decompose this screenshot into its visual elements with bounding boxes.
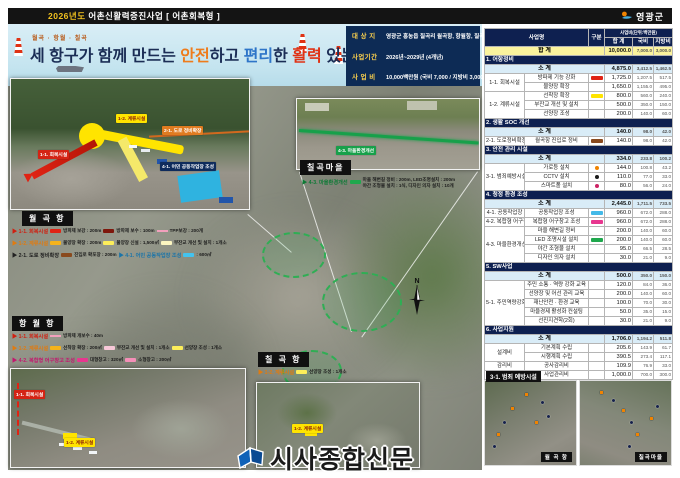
harbor-highlight-ellipse	[262, 232, 326, 278]
legend-text: 방파제 개보수 : 40m	[63, 333, 103, 339]
harbor-highlight-ellipse	[322, 272, 402, 332]
legend-swatch	[172, 346, 183, 350]
section-row: 5. SW사업	[485, 263, 673, 272]
table-row: 5-1. 주민역량강화주민 소통 · 역량 강화 교육120.084.036.0	[485, 281, 673, 290]
map-facility-tag: 2-1. 도로 정비확장	[162, 126, 203, 135]
legend-text: 방파제 보수 : 100m	[116, 228, 154, 234]
legend-row: ▶ 1-1. 회복시설방파제 개보수 : 40m	[12, 330, 262, 342]
compass-north-label: N	[408, 278, 426, 285]
village-roofs	[407, 101, 437, 110]
slogan-main: 세 항구가 함께 만드는 안전하고 편리한 활력 있는 어촌	[30, 42, 389, 66]
text-part: 세 항구가 함께 만드는	[30, 48, 180, 65]
map-facility-tag: 1-1. 회복시설	[38, 150, 69, 159]
workshop-area	[177, 170, 222, 203]
crime-photo-chilgok: 칠곡마을	[579, 380, 672, 466]
chilgok-hang-caption: 칠 곡 항	[258, 352, 309, 367]
legend-row: ▶ 4-3. 마을환경개선마을 해변길 정비 : 200m, LED조명설치 :…	[302, 176, 480, 188]
press-watermark: 시사종합신문	[236, 440, 414, 476]
hangwol-legend: ▶ 1-1. 회복시설방파제 개보수 : 40m▶ 1-2. 계류시설선착장 확…	[12, 330, 262, 366]
legend-title: ▶ 4-3. 마을환경개선	[302, 179, 348, 186]
info-label: 사 업 비	[352, 72, 382, 81]
top-title-bar: 2026년도 어촌신활력증진사업 [ 어촌회복형 ] 영광군	[8, 8, 672, 24]
info-label: 대 상 지	[352, 31, 382, 40]
map-facility-tag: 1-2. 계류시설	[292, 424, 323, 433]
legend-row: ▶ 2-1. 도로 정비확장진입로 확포장 : 200m▶ 4-1. 어민 공동…	[12, 249, 262, 261]
section-row: 3. 안전 관리 시설	[485, 146, 673, 155]
legend-swatch	[183, 253, 194, 257]
boat	[89, 451, 97, 454]
legend-lines: 마을 해변길 정비 : 200m, LED조명설치 : 200m야간 조형물 설…	[363, 177, 455, 188]
hangwol-photo	[10, 368, 246, 468]
legend-swatch	[50, 241, 61, 245]
legend-dash-swatch	[50, 335, 61, 337]
subtotal-row: 소 계334.0233.8100.2	[485, 155, 673, 164]
boat	[141, 149, 150, 152]
wolgok-legend: ▶ 1-1. 회복시설방파제 보강 : 200m방파제 보수 : 100mTPP…	[12, 225, 262, 261]
text-part: 활력	[292, 48, 321, 65]
text-part: 편리	[244, 48, 273, 65]
legend-swatch	[61, 253, 72, 257]
legend-row: ▶ 4-2. 복합형 어구창고 조성대형창고 : 320㎡소형창고 : 200㎡	[12, 354, 262, 366]
info-row: 대 상 지영광군 홍농읍 칠곡리 월곡항, 항월항, 칠곡항 일원	[352, 31, 474, 40]
info-value: 2026년~2029년 (4개년)	[386, 53, 443, 61]
boat	[129, 145, 137, 148]
wolgok-caption: 월 곡 항	[22, 211, 73, 226]
legend-text: 소형창고 : 200㎡	[138, 357, 171, 363]
legend-row: ▶ 1-2. 계류시설선양장 조성 : 1개소	[258, 366, 418, 378]
crime-photo-wolgok: 월 곡 항	[484, 380, 577, 466]
chilgok-hang-legend: ▶ 1-2. 계류시설선양장 조성 : 1개소	[258, 366, 418, 378]
table-row: 1-1. 회복시설방파제 기능 강화1,725.01,207.5517.5	[485, 74, 673, 83]
table-row: 3-1. 범죄예방시설가로등 설치144.0100.843.2	[485, 164, 673, 173]
text-part: 안전	[180, 48, 209, 65]
legend-title: ▶ 1-1. 회복시설	[12, 228, 48, 235]
county-logo: 영광군	[621, 10, 672, 23]
legend-text: 대형창고 : 320㎡	[90, 357, 123, 363]
legend-text: 선착장 확장 : 200㎡	[63, 345, 102, 351]
chilgok-maeul-caption: 칠곡마을	[300, 160, 351, 175]
poster-page: 2026년도 어촌신활력증진사업 [ 어촌회복형 ] 영광군 월곡 · 항월 ·…	[0, 0, 680, 478]
section-row: 2. 생활 SOC 개선	[485, 119, 673, 128]
budget-table: 사업명구분 사업비(단위:백만원) 합 계국비지방비합 계10,000.07,0…	[484, 28, 673, 380]
map-facility-tag: 1-2. 계류시설	[116, 114, 147, 123]
legend-text: : 600㎡	[196, 252, 211, 258]
subtotal-row: 소 계2,445.01,711.5733.5	[485, 200, 673, 209]
table-row: 4-2. 복합형 어구창고복합형 어구창고 조성960.0672.0288.0	[485, 218, 673, 227]
section-row: 1. 어항정비	[485, 56, 673, 65]
boat	[73, 447, 82, 450]
table-row: 감리비공사감리비109.976.933.0	[485, 362, 673, 371]
table-row: 2-1. 도로정비확장월곡항 진입로 정비140.098.042.0	[485, 137, 673, 146]
legend-title: ▶ 1-2. 계류시설	[12, 345, 48, 352]
map-facility-tag: 4-1. 어민 공동작업장 조성	[160, 162, 216, 171]
legend-text: 물양장 확장 : 200m	[63, 240, 101, 246]
county-logo-icon	[621, 11, 633, 21]
text-part: 하고	[210, 48, 244, 65]
table-row: 설계비기본계획 수립205.6143.961.7	[485, 344, 673, 353]
green-coast-line	[299, 129, 479, 145]
map-facility-tag: 1-1. 회복시설	[14, 390, 45, 399]
subtotal-row: 소 계4,875.03,412.51,462.5	[485, 65, 673, 74]
legend-swatch	[161, 241, 172, 245]
compass-icon: N	[408, 278, 426, 320]
crime-prevention-photos: 월 곡 항 칠곡마을	[484, 380, 672, 466]
legend-swatch	[103, 229, 114, 233]
legend-dash-swatch	[157, 230, 168, 232]
press-name: 시사종합신문	[270, 440, 414, 476]
map-facility-tag: 1-2. 계류시설	[64, 438, 95, 447]
crime-prevention-label: 3-1. 범죄 예방시설	[486, 371, 541, 382]
legend-swatch	[125, 358, 136, 362]
legend-swatch	[103, 241, 114, 245]
slogan-ports: 월곡 · 항월 · 칠곡	[32, 33, 88, 42]
text-part: 한	[273, 48, 292, 65]
subtotal-row: 소 계140.098.042.0	[485, 128, 673, 137]
legend-text: 방파제 보강 : 200m	[63, 228, 101, 234]
press-logo-icon	[236, 446, 266, 470]
legend-title: ▶ 1-2. 계류시설	[258, 369, 294, 376]
legend-text: 선양장 조성 : 1개소	[309, 369, 347, 375]
chilgok-maeul-legend: ▶ 4-3. 마을환경개선마을 해변길 정비 : 200m, LED조명설치 :…	[302, 176, 480, 188]
text-part: 2026년도	[48, 11, 88, 21]
legend-text: 선양장 조성 : 1개소	[185, 345, 223, 351]
legend-title: ▶ 4-2. 복합형 어구창고 조성	[12, 357, 75, 364]
info-value: 10,000백만원 (국비 7,000 / 지방비 3,000)	[386, 73, 485, 81]
legend-text: 부잔교 개선 및 설치 : 1개소	[174, 240, 227, 246]
text-part: [ 어촌회복형 ]	[166, 11, 220, 21]
legend-row: ▶ 1-1. 회복시설방파제 보강 : 200m방파제 보수 : 100mTPP…	[12, 225, 262, 237]
legend-text: 부잔교 개선 및 설치 : 1개소	[117, 345, 170, 351]
info-row: 사업기간2026년~2029년 (4개년)	[352, 52, 474, 61]
crime-photo-caption: 칠곡마을	[635, 452, 667, 462]
legend-text: 진입로 확포장 : 200m	[74, 252, 116, 258]
legend-text: 물양장 신설 : 1,500㎡	[116, 240, 159, 246]
map-facility-tag: 4-3. 마을환경개선	[336, 146, 376, 155]
table-row: 1-2. 계류시설선착장 확장800.0560.0240.0	[485, 92, 673, 101]
subtotal-row: 소 계500.0350.0150.0	[485, 272, 673, 281]
blue-roof	[219, 197, 233, 203]
mudflat-shape	[131, 399, 231, 459]
legend-swatch	[77, 358, 88, 362]
section-row: 6. 사업지원	[485, 326, 673, 335]
project-info-panel: 대 상 지영광군 홍농읍 칠곡리 월곡항, 항월항, 칠곡항 일원사업기간202…	[346, 26, 480, 86]
text-part: 어촌신활력증진사업	[88, 11, 166, 21]
legend-swatch	[296, 370, 307, 374]
legend-text: TPP보강 : 200개	[170, 228, 203, 234]
table-header: 사업명구분 사업비(단위:백만원)	[485, 29, 673, 38]
poster-title: 2026년도 어촌신활력증진사업 [ 어촌회복형 ]	[8, 10, 220, 22]
legend-swatch	[350, 180, 361, 184]
section-row: 4. 청정 환경 조성	[485, 191, 673, 200]
hangwol-caption: 항 월 항	[12, 316, 63, 331]
info-row: 사 업 비10,000백만원 (국비 7,000 / 지방비 3,000)	[352, 72, 474, 81]
village-roofs	[305, 103, 329, 111]
legend-title: ▶ 1-1. 회복시설	[12, 333, 48, 340]
legend-title: ▶ 1-2. 계류시설	[12, 240, 48, 247]
total-row: 합 계10,000.07,000.03,000.0	[485, 47, 673, 56]
table-row: 4-3. 마을환경개선마을 해변길 정비200.0140.060.0	[485, 227, 673, 236]
legend-swatch	[50, 229, 61, 233]
table-row: 4-1. 공동작업장공동작업장 조성960.0672.0288.0	[485, 209, 673, 218]
crime-photo-caption: 월 곡 항	[541, 452, 572, 462]
legend-title: ▶ 4-1. 어민 공동작업장 조성	[119, 252, 182, 259]
county-name: 영광군	[636, 10, 664, 23]
legend-row: ▶ 1-2. 계류시설선착장 확장 : 200㎡부잔교 개선 및 설치 : 1개…	[12, 342, 262, 354]
legend-swatch	[50, 346, 61, 350]
ship-icon	[56, 66, 84, 72]
info-label: 사업기간	[352, 52, 382, 61]
wolgok-photo	[10, 78, 250, 210]
subtotal-row: 소 계1,706.01,194.2511.8	[485, 335, 673, 344]
budget-column: 사업명구분 사업비(단위:백만원) 합 계국비지방비합 계10,000.07,0…	[484, 24, 672, 470]
legend-title: ▶ 2-1. 도로 정비확장	[12, 252, 59, 259]
legend-swatch	[104, 346, 115, 350]
legend-row: ▶ 1-2. 계류시설물양장 확장 : 200m물양장 신설 : 1,500㎡부…	[12, 237, 262, 249]
